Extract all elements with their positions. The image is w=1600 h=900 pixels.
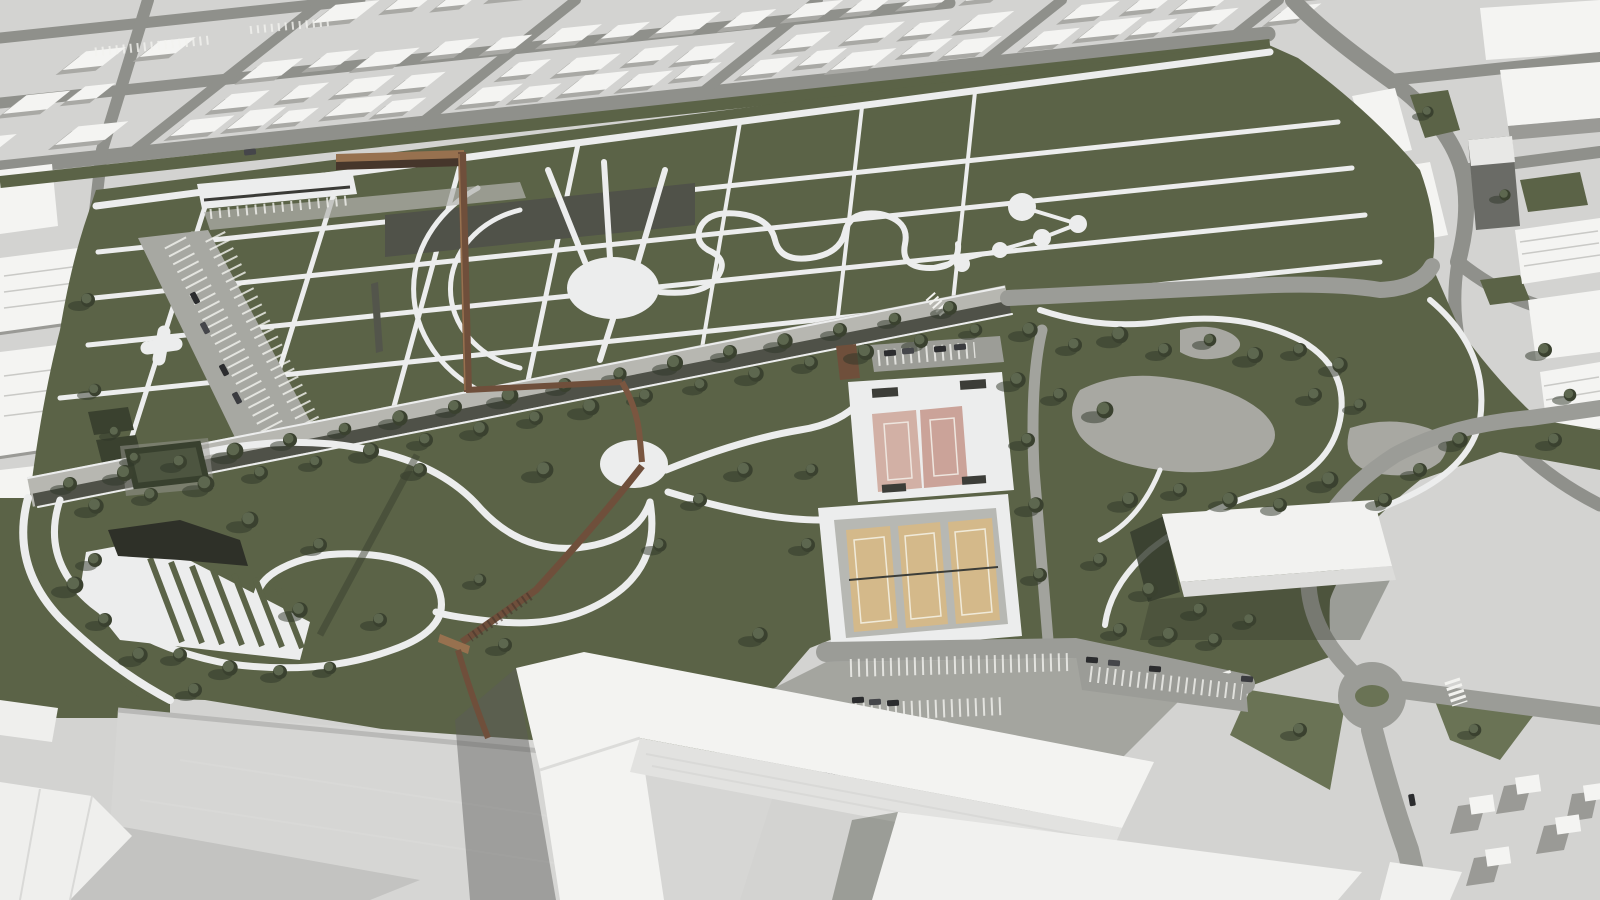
event-hall [1130, 500, 1396, 640]
masterplan-rendering [0, 0, 1600, 900]
roundabout-island [1355, 685, 1389, 707]
aerial-render [0, 0, 1600, 900]
